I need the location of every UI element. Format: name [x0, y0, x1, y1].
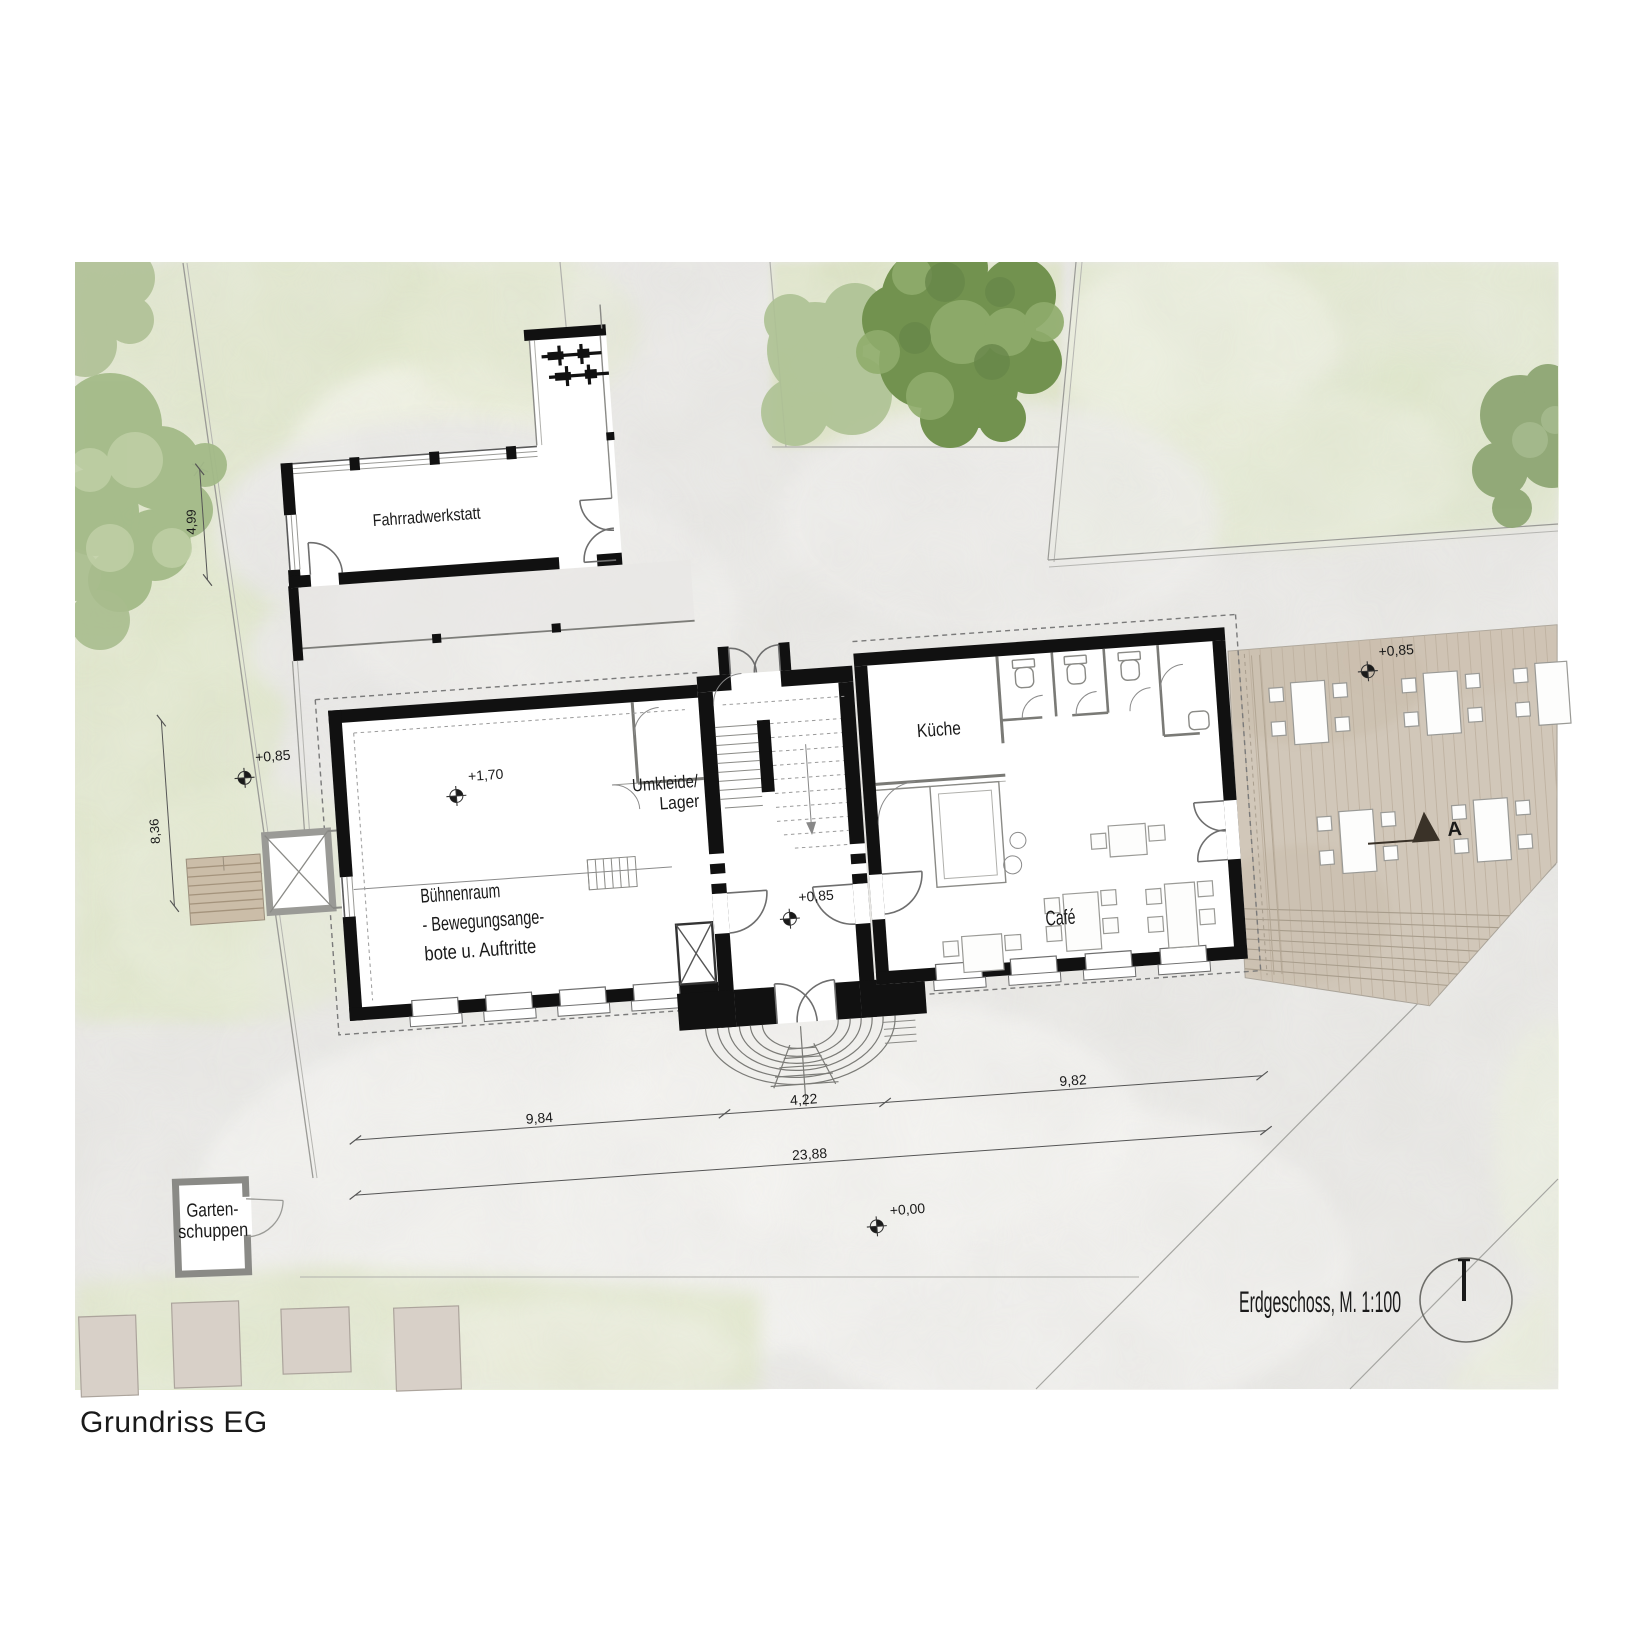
svg-text:Küche: Küche — [916, 718, 961, 742]
svg-text:A: A — [1446, 818, 1462, 841]
svg-text:Lager: Lager — [659, 791, 700, 814]
svg-text:Grundriss EG: Grundriss EG — [80, 1406, 268, 1439]
svg-text:Café: Café — [1045, 906, 1077, 931]
svg-text:4,22: 4,22 — [790, 1090, 819, 1108]
svg-text:9,82: 9,82 — [1059, 1071, 1088, 1089]
svg-text:schuppen: schuppen — [178, 1220, 249, 1243]
svg-text:Erdgeschoss, M. 1:100: Erdgeschoss, M. 1:100 — [1239, 1286, 1401, 1319]
svg-text:8,36: 8,36 — [146, 818, 163, 844]
svg-text:+0,85: +0,85 — [798, 887, 835, 905]
svg-text:9,84: 9,84 — [525, 1109, 554, 1127]
svg-text:23,88: 23,88 — [791, 1145, 827, 1163]
svg-text:Garten-: Garten- — [186, 1199, 239, 1222]
svg-text:+0,00: +0,00 — [889, 1200, 926, 1218]
svg-text:+1,70: +1,70 — [467, 766, 504, 784]
svg-text:+0,85: +0,85 — [255, 747, 292, 765]
svg-text:+0,85: +0,85 — [1378, 641, 1415, 659]
svg-text:4,99: 4,99 — [184, 509, 199, 534]
